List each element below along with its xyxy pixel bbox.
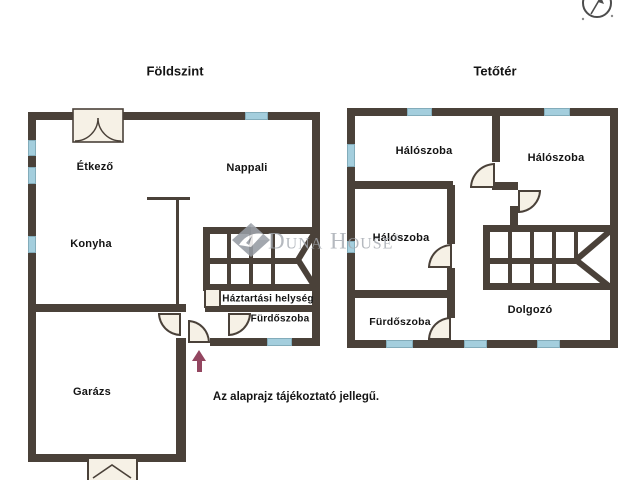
wall-segment [492, 116, 500, 162]
room-label-garazs: Garázs [73, 386, 111, 398]
window [386, 340, 413, 348]
stairs-symbol [203, 227, 318, 291]
wall-segment [447, 298, 455, 318]
room-label-furdoszoba-attic: Fürdőszoba [369, 316, 431, 328]
partition-wall [176, 200, 179, 306]
window [245, 112, 268, 120]
wall-segment [447, 185, 455, 244]
window [407, 108, 432, 116]
room-label-konyha: Konyha [70, 238, 112, 250]
entrance-arrow-icon [192, 350, 206, 373]
disclaimer-text: Az alaprajz tájékoztató jellegű. [213, 391, 379, 403]
window [537, 340, 560, 348]
room-label-haloszoba-2: Hálószoba [528, 152, 585, 164]
room-label-nappali: Nappali [226, 162, 267, 174]
door-swing [470, 163, 495, 188]
wall-segment [347, 290, 455, 298]
room-label-furdoszoba-ground: Fürdőszoba [251, 314, 310, 325]
window [544, 108, 570, 116]
arrow-head [192, 350, 206, 361]
wall-segment [205, 305, 320, 312]
double-door-icon [72, 108, 124, 143]
floor-plan-canvas: Földszint Tetőtér [0, 0, 640, 480]
door-swing [518, 190, 541, 213]
room-label-haloszoba-1: Hálószoba [396, 145, 453, 157]
wall-segment [28, 112, 36, 462]
arrow-shaft [197, 361, 202, 372]
stairs-symbol [483, 225, 613, 290]
wall-segment [510, 206, 518, 227]
room-label-etkezo: Étkező [77, 161, 114, 173]
window [464, 340, 487, 348]
door-swing [428, 317, 451, 340]
attic-floor-title: Tetőtér [473, 64, 516, 79]
compass-north-icon [579, 0, 617, 24]
ground-floor-title: Földszint [146, 64, 203, 79]
door-swing [158, 313, 181, 336]
garage-door-icon [87, 457, 138, 480]
wall-segment [28, 304, 186, 312]
door-swing [428, 244, 452, 268]
front-door-swing [188, 320, 210, 343]
room-label-haztartasi: Háztartási helység [222, 294, 313, 305]
window [347, 144, 355, 167]
wall-segment [355, 181, 453, 189]
window [347, 241, 355, 253]
window [28, 140, 36, 156]
door-swing [228, 313, 251, 336]
window [267, 338, 292, 346]
window [28, 236, 36, 253]
partition-wall [147, 197, 190, 200]
room-label-dolgozo: Dolgozó [508, 304, 553, 316]
window [28, 167, 36, 184]
wall-segment [347, 108, 618, 116]
wall-segment [176, 338, 186, 462]
wall-segment [492, 182, 518, 190]
room-label-haloszoba-3: Hálószoba [373, 232, 430, 244]
wall-segment [210, 338, 320, 346]
door-opening [204, 288, 221, 308]
